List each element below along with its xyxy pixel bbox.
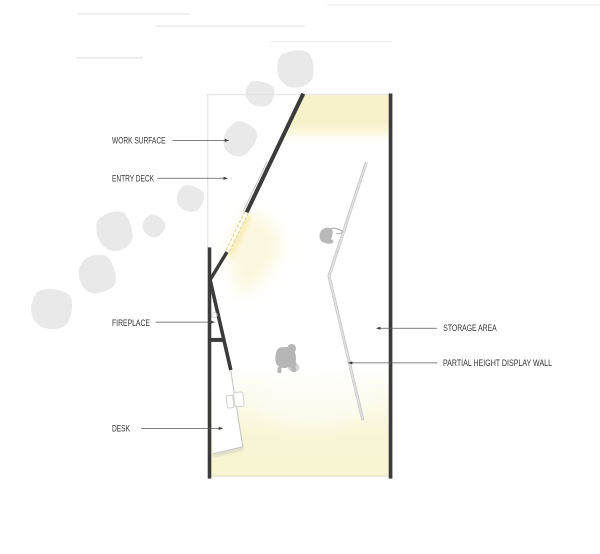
svg-text:WORK SURFACE: WORK SURFACE — [112, 135, 166, 145]
svg-text:STORAGE AREA: STORAGE AREA — [443, 323, 497, 333]
svg-text:PARTIAL HEIGHT DISPLAY WALL: PARTIAL HEIGHT DISPLAY WALL — [443, 358, 552, 368]
svg-text:FIREPLACE: FIREPLACE — [112, 318, 150, 328]
svg-text:DESK: DESK — [112, 423, 131, 433]
svg-text:ENTRY DECK: ENTRY DECK — [112, 174, 155, 184]
